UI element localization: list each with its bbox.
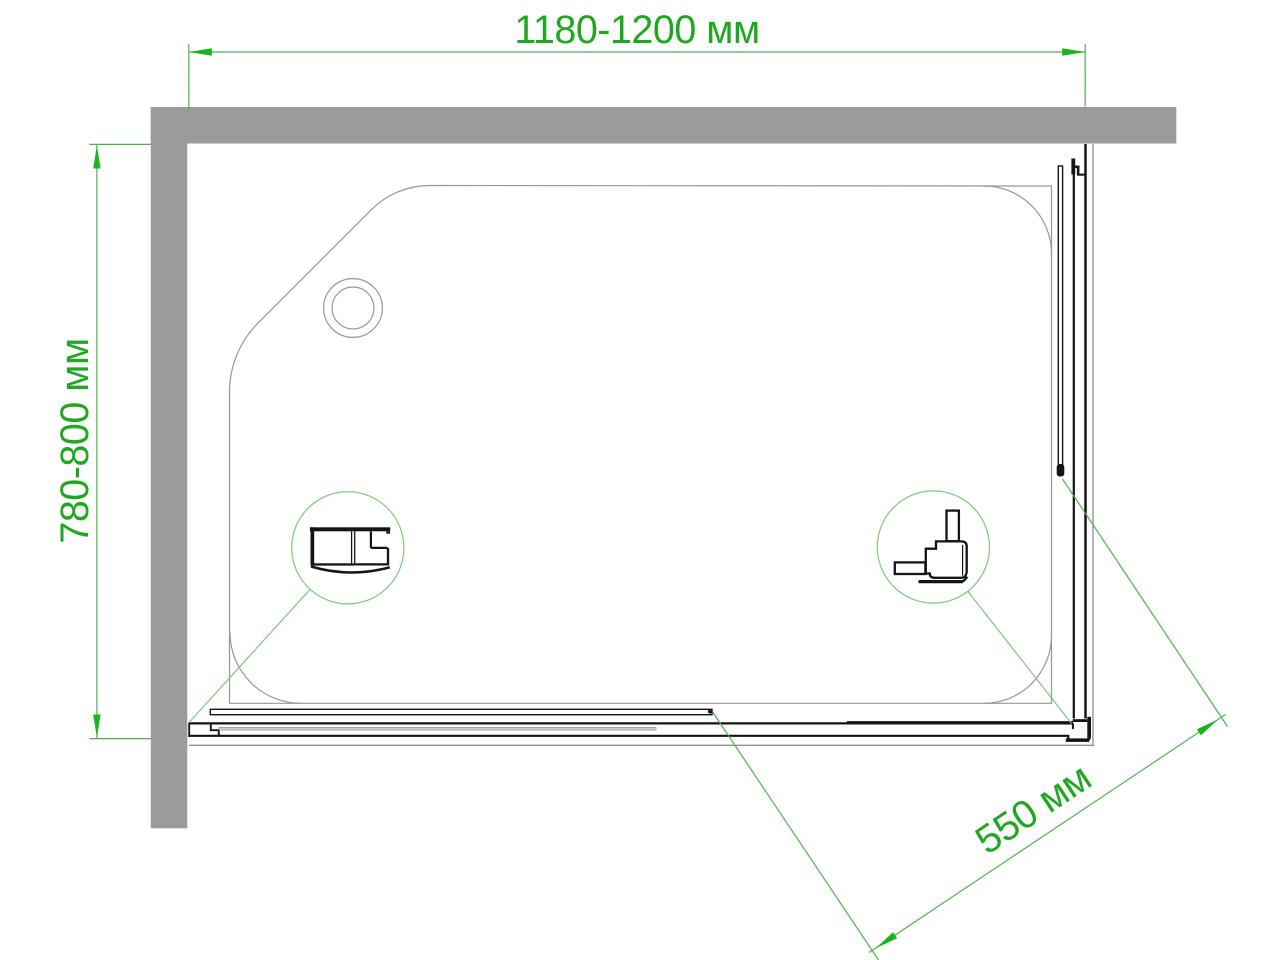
svg-text:550 мм: 550 мм: [968, 755, 1099, 863]
svg-text:1180-1200 мм: 1180-1200 мм: [514, 8, 759, 52]
svg-text:780-800 мм: 780-800 мм: [53, 338, 97, 543]
